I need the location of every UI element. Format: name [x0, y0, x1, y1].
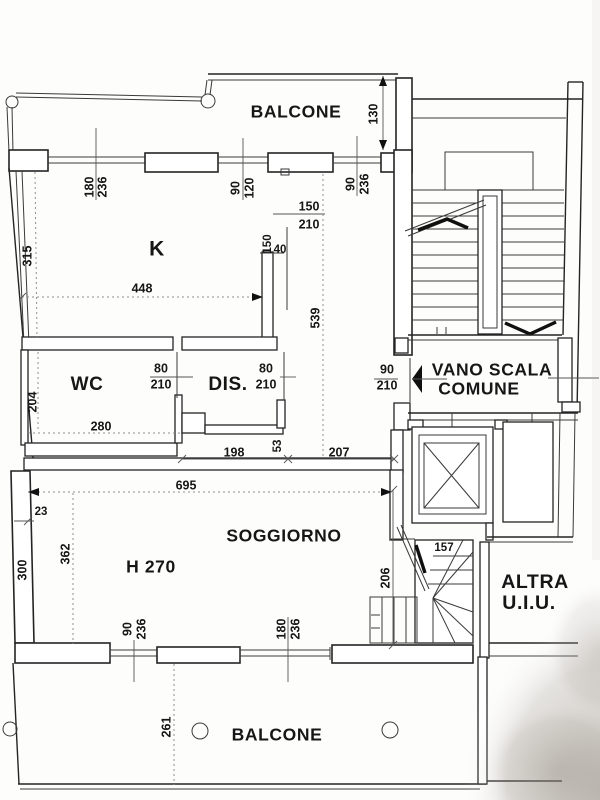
- column-circle: [192, 723, 208, 739]
- room-label-stairwell-1: VANO SCALA: [432, 360, 552, 380]
- dim-hall-length: 539: [308, 308, 322, 329]
- dim-window-h: 236: [134, 619, 148, 640]
- stair-direction-arrow: [418, 219, 468, 230]
- room-label-balcony-top: BALCONE: [251, 102, 342, 122]
- dim-kitchen-width: 448: [132, 281, 153, 295]
- stair-direction-arrow: [505, 322, 556, 334]
- room-label-dis: DIS.: [208, 374, 247, 395]
- room-label-wc: WC: [71, 374, 104, 395]
- column-circle: [382, 722, 398, 738]
- north-wall: [9, 150, 412, 175]
- floor-plan-svg: BALCONE 130 180 236 90 120 90 236 K 315 …: [0, 0, 600, 800]
- dim-stub-length: 150: [262, 234, 274, 253]
- dim-wall-offset: 23: [35, 506, 48, 518]
- railing-post-circle: [6, 96, 18, 108]
- dim-entry-door-w: 90: [380, 362, 394, 376]
- railing-post-circle: [201, 94, 215, 108]
- dim-window-h: 236: [357, 174, 371, 195]
- label-ceiling-height: H 270: [126, 557, 176, 577]
- room-label-kitchen: K: [149, 238, 165, 261]
- dim-window-h: 236: [95, 177, 109, 198]
- dim-window-w: 90: [343, 177, 357, 191]
- dim-seg-53: 53: [272, 440, 284, 453]
- dim-stub-thickness: 40: [274, 244, 287, 256]
- room-label-balcony-bottom: BALCONE: [232, 725, 323, 745]
- stair-treads-right: [500, 190, 564, 320]
- room-label-other-unit-2: U.I.U.: [502, 592, 555, 614]
- dim-window-h: 120: [242, 178, 256, 199]
- kitchen-stub-wall: [262, 252, 273, 340]
- dim-wc-depth: 204: [25, 392, 39, 413]
- dim-window-w: 180: [274, 619, 288, 640]
- scanned-floor-plan: BALCONE 130 180 236 90 120 90 236 K 315 …: [0, 0, 600, 800]
- dim-window-w: 90: [120, 622, 134, 636]
- dim-wc-width: 280: [91, 419, 112, 433]
- dim-wall-side: 300: [15, 560, 29, 581]
- dim-kitchen-depth: 315: [20, 246, 34, 267]
- elevator-shaft: [412, 413, 575, 540]
- dim-opening-w: 150: [299, 199, 320, 213]
- dim-dis-door-h: 210: [256, 377, 277, 391]
- dim-entry-door-h: 210: [377, 378, 398, 392]
- dim-dis-door-w: 80: [259, 361, 273, 375]
- room-label-living: SOGGIORNO: [226, 526, 341, 546]
- dim-living-width: 695: [176, 478, 197, 492]
- room-label-stairwell-2: COMUNE: [438, 379, 519, 399]
- dim-opening-h: 210: [299, 217, 320, 231]
- dim-wc-door-h: 210: [151, 377, 172, 391]
- dim-wc-door-w: 80: [154, 361, 168, 375]
- dim-living-depth: 362: [58, 544, 72, 565]
- dim-window-w: 90: [228, 181, 242, 195]
- dim-balcony-bottom-depth: 261: [159, 717, 173, 738]
- dim-stair-depth: 206: [378, 568, 392, 589]
- dim-stair-width: 157: [434, 542, 453, 554]
- shaft-room: [503, 422, 553, 522]
- stair-treads-left: [412, 190, 478, 320]
- dim-seg-198: 198: [224, 445, 245, 459]
- dim-balcony-top: 130: [366, 104, 380, 125]
- dim-window-w: 180: [82, 177, 96, 198]
- room-label-other-unit-1: ALTRA: [501, 571, 569, 593]
- wc-dis-walls: [21, 337, 285, 456]
- column-circle: [3, 722, 17, 736]
- dim-window-h: 236: [288, 619, 302, 640]
- living-room-walls: [11, 430, 473, 663]
- dim-seg-207: 207: [329, 445, 350, 459]
